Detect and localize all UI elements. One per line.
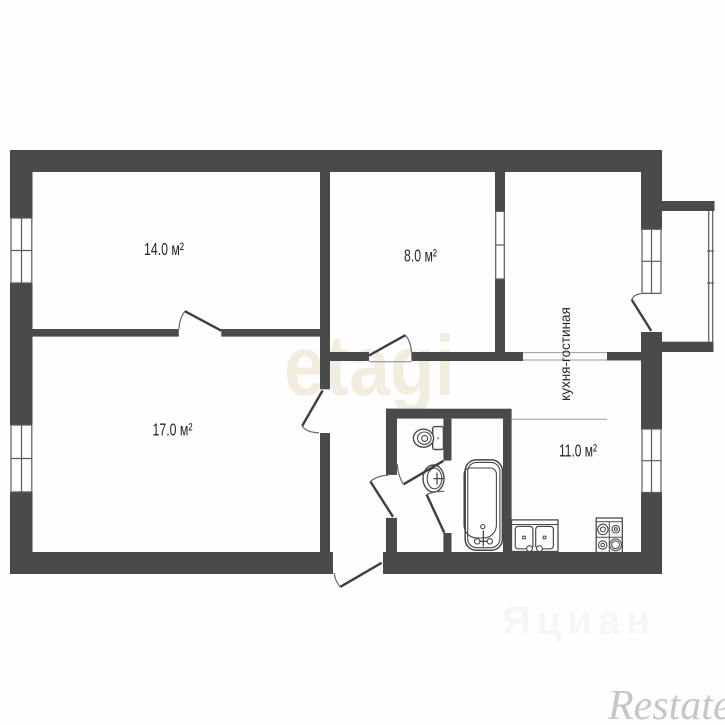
svg-text:17.0 м²: 17.0 м² [153, 420, 193, 440]
svg-text:11.0 м²: 11.0 м² [559, 441, 597, 461]
svg-text:8.0 м²: 8.0 м² [404, 246, 437, 266]
svg-text:Restate: Restate [607, 683, 725, 725]
svg-text:кухня-гостиная: кухня-гостиная [558, 307, 573, 401]
svg-text:Яциан: Яциан [502, 599, 656, 643]
svg-text:14.0 м²: 14.0 м² [144, 239, 184, 259]
